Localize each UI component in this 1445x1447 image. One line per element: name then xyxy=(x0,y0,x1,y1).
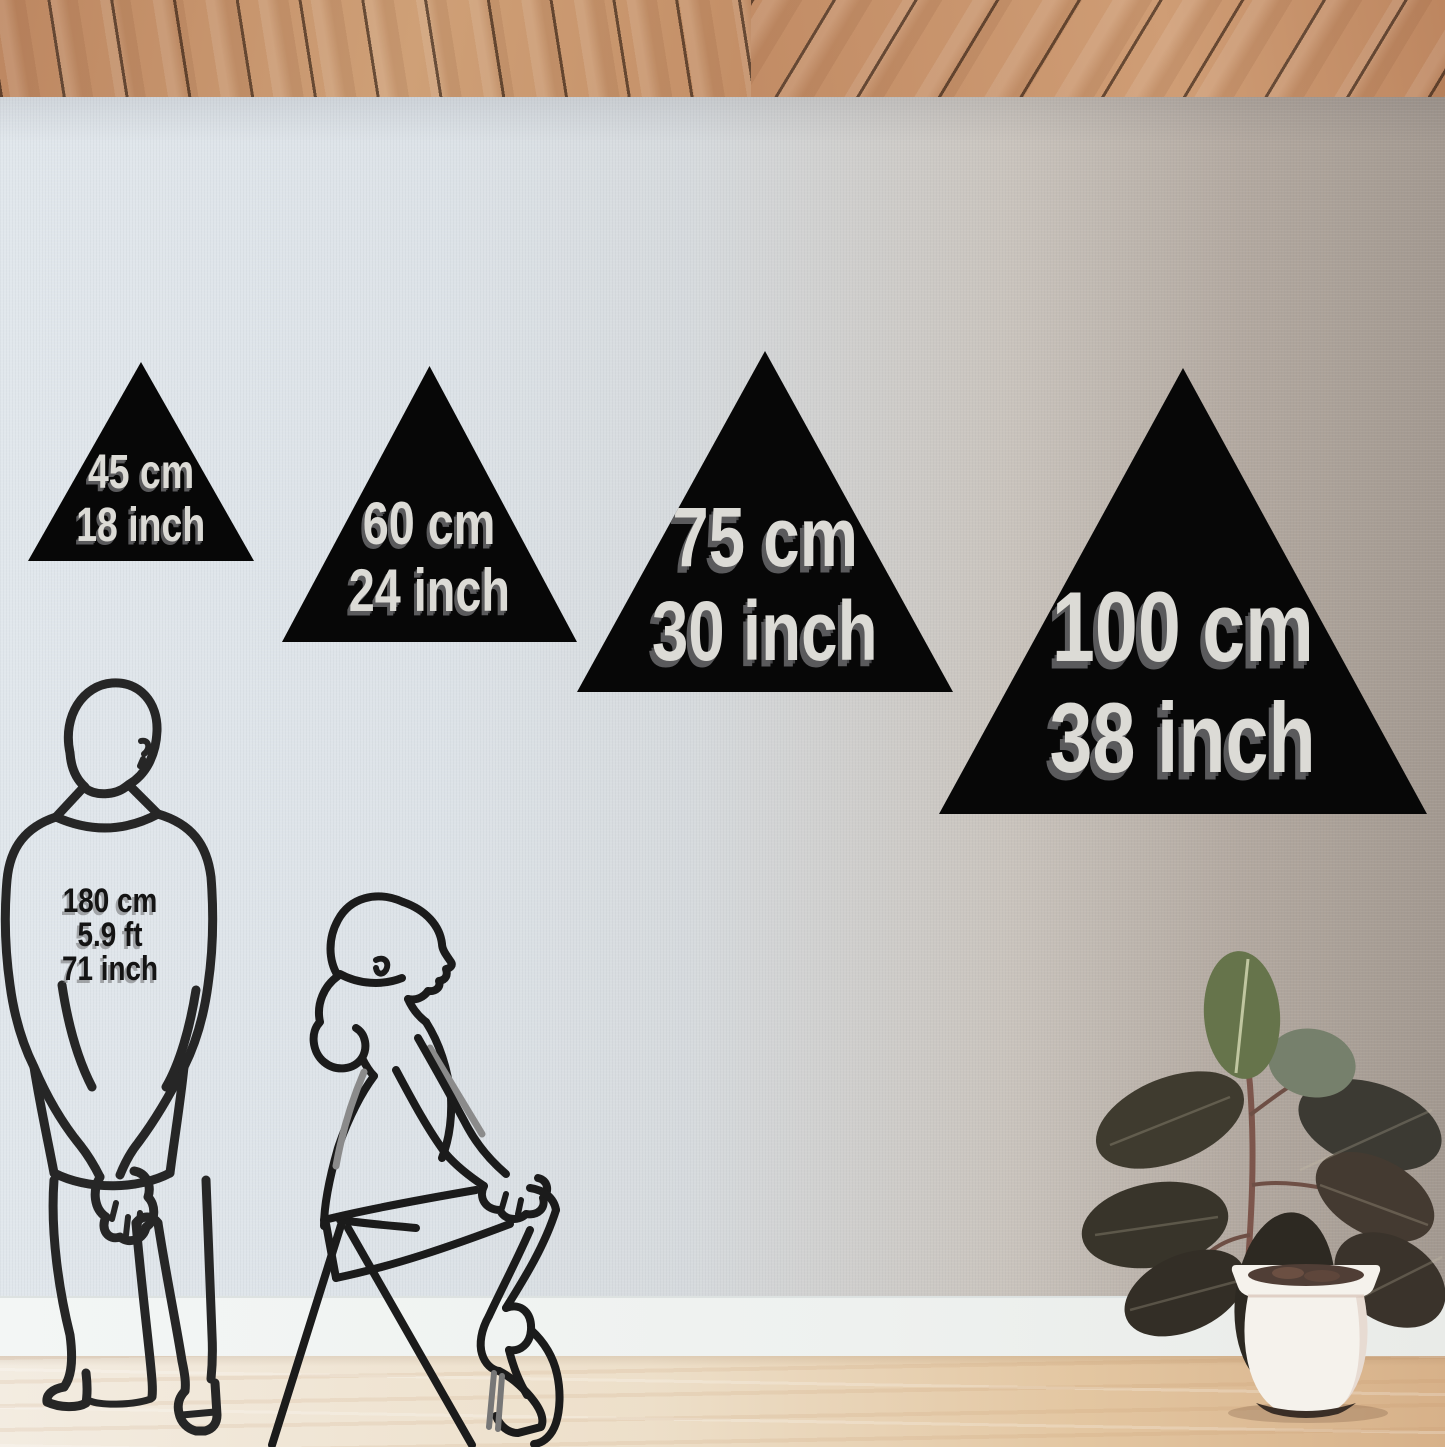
stool xyxy=(272,1220,472,1445)
size-label-cm: 75 cm xyxy=(672,490,858,584)
woman-hair xyxy=(314,896,403,1068)
size-label-inch: 24 inch xyxy=(349,557,510,624)
size-label-cm: 45 cm xyxy=(88,446,194,500)
woman-ear xyxy=(376,959,387,974)
ceiling-slats-left xyxy=(0,0,751,97)
ceiling-slats-right xyxy=(751,0,1445,97)
person-height-label: 180 cm 5.9 ft 71 inch xyxy=(48,884,172,986)
size-label-inch: 38 inch xyxy=(1050,683,1316,794)
high-heel-shoes xyxy=(481,1306,560,1444)
seated-woman-figure xyxy=(268,886,603,1447)
size-label-inch: 30 inch xyxy=(652,584,878,678)
white-pot xyxy=(1232,1264,1380,1418)
woman-clasped-hands xyxy=(482,1178,547,1219)
standing-man-figure xyxy=(0,675,250,1447)
size-label-cm: 60 cm xyxy=(363,490,496,557)
person-height-ft: 5.9 ft xyxy=(59,918,161,952)
standing-man-outline xyxy=(0,675,250,1447)
seated-woman-outline xyxy=(268,886,603,1447)
size-label-inch: 18 inch xyxy=(76,499,205,553)
person-height-cm: 180 cm xyxy=(59,884,161,918)
potted-rubber-plant xyxy=(1050,935,1445,1447)
rubber-plant xyxy=(1050,935,1445,1447)
size-label-cm: 100 cm xyxy=(1052,572,1314,683)
man-head xyxy=(68,683,157,785)
size-guide-scene: 45 cm 18 inch 60 cm 24 inch 75 cm 30 inc… xyxy=(0,0,1445,1447)
wood-slat-ceiling xyxy=(0,0,1445,97)
person-height-inch: 71 inch xyxy=(59,952,161,986)
woman-face xyxy=(403,902,452,1000)
